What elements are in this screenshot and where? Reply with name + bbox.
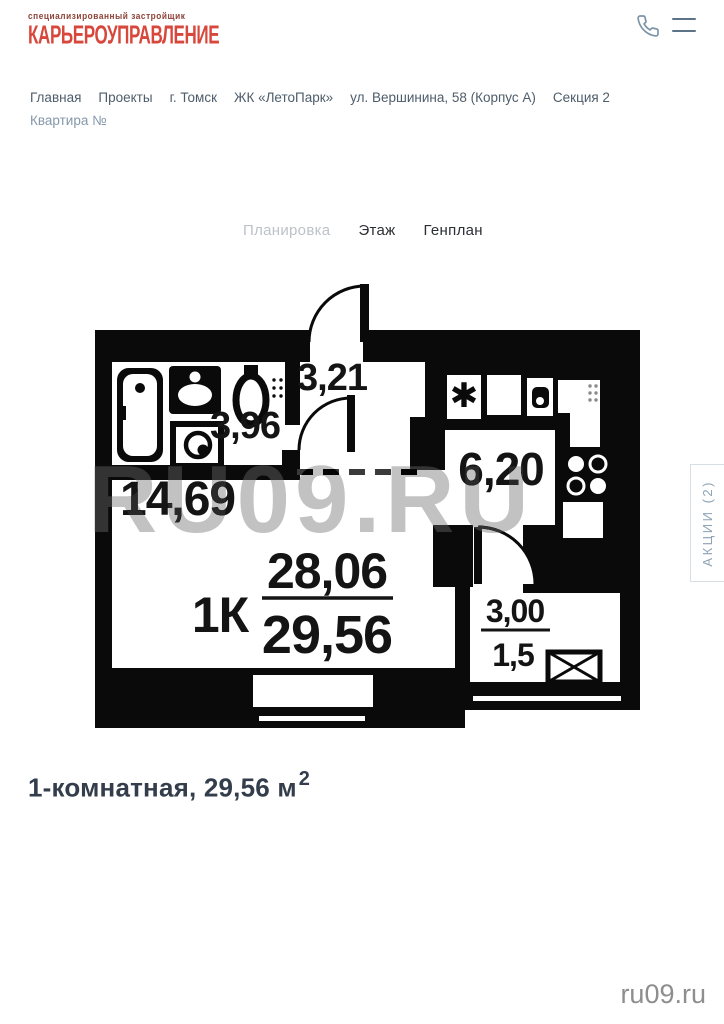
page-title-text: 1-комнатная, 29,56 м [28, 773, 297, 803]
promo-actions-button[interactable]: АКЦИИ (2) [690, 464, 724, 582]
breadcrumb-item-address[interactable]: ул. Вершинина, 58 (Корпус А) [350, 89, 536, 106]
floor-plan: ✱ [85, 280, 645, 730]
hamburger-menu-icon[interactable] [672, 18, 696, 32]
label-balcony-area: 3,00 [486, 593, 544, 629]
promo-actions-label: АКЦИИ (2) [700, 480, 715, 567]
label-kitchen-area: 6,20 [458, 443, 544, 495]
bathroom-door-icon [299, 395, 355, 452]
label-living-area: 14,69 [120, 473, 235, 526]
page: специализированный застройщик КАРЬЕРОУПР… [0, 0, 724, 1024]
fridge-icon: ✱ [450, 377, 479, 415]
bathtub-icon [117, 368, 163, 462]
phone-button[interactable] [636, 14, 660, 38]
vent-icon-2 [272, 378, 282, 397]
view-tabs: Планировка Этаж Генплан [243, 222, 483, 239]
phone-icon [636, 14, 660, 38]
label-area-upper: 28,06 [267, 543, 387, 599]
site-watermark: ru09.ru [620, 979, 706, 1010]
breadcrumb-item-projects[interactable]: Проекты [98, 89, 152, 106]
label-bathroom-area: 3,96 [210, 405, 280, 447]
page-title-sup: 2 [299, 768, 310, 790]
breadcrumb-item-home[interactable]: Главная [30, 89, 81, 106]
breadcrumb-item-section[interactable]: Секция 2 [553, 89, 610, 106]
breadcrumb-item-flat: Квартира № [30, 112, 107, 129]
tab-etazh[interactable]: Этаж [358, 222, 395, 239]
page-title: 1-комнатная, 29,56 м2 [28, 770, 308, 804]
label-balcony-reduced: 1,5 [492, 637, 534, 673]
balcony-window-line [473, 696, 621, 701]
label-area-lower: 29,56 [262, 605, 392, 665]
logo-name: КАРЬЕРОУПРАВЛЕНИЕ [28, 21, 219, 48]
label-flat-type: 1К [192, 587, 250, 643]
tab-genplan[interactable]: Генплан [424, 222, 483, 239]
breadcrumb: Главная Проекты г. Томск ЖК «ЛетоПарк» у… [30, 89, 680, 129]
balcony-hatch-icon [548, 652, 600, 682]
breadcrumb-item-complex[interactable]: ЖК «ЛетоПарк» [234, 89, 333, 106]
entrance-door-icon [309, 284, 369, 342]
company-logo[interactable]: специализированный застройщик КАРЬЕРОУПР… [28, 11, 286, 45]
breadcrumb-item-city[interactable]: г. Томск [170, 89, 217, 106]
floor-plan-drawing: ✱ [85, 280, 645, 730]
label-hall-area: 3,21 [297, 357, 368, 399]
tab-planirovka[interactable]: Планировка [243, 222, 330, 239]
